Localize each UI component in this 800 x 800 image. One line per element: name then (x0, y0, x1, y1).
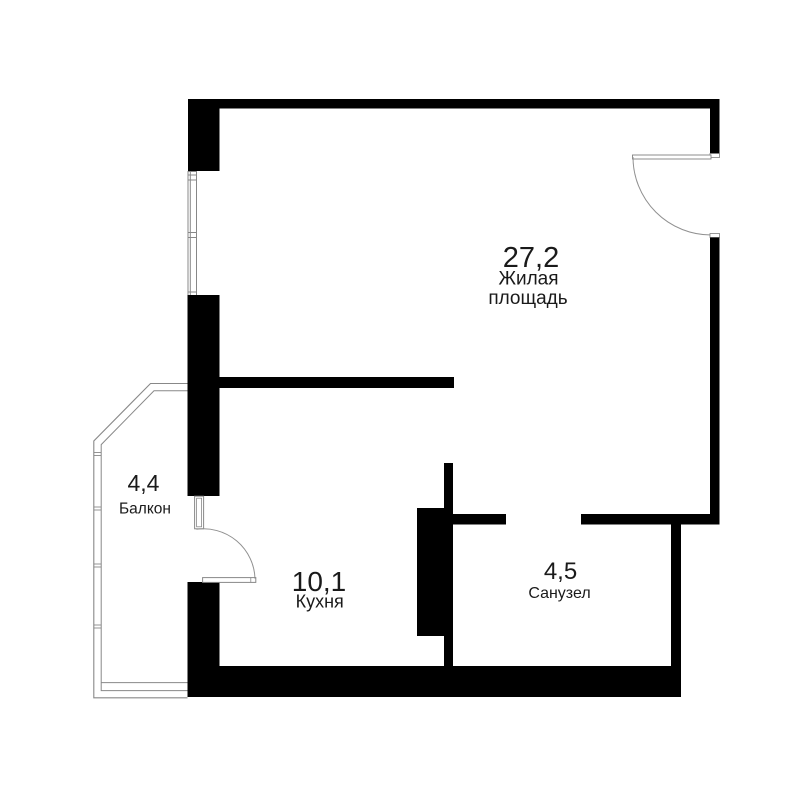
svg-text:Кухня: Кухня (296, 592, 344, 612)
svg-text:Санузел: Санузел (528, 585, 590, 602)
svg-text:4,4: 4,4 (128, 470, 160, 496)
svg-text:площадь: площадь (488, 288, 567, 309)
svg-text:4,5: 4,5 (544, 558, 577, 585)
svg-text:Балкон: Балкон (119, 501, 171, 518)
svg-text:Жилая: Жилая (498, 269, 558, 290)
